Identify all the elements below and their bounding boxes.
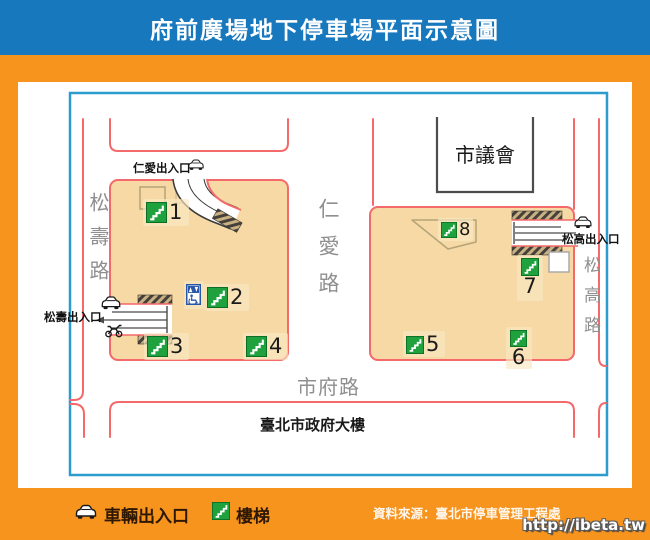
entrance-label-songgao: 松高出入口 <box>562 231 620 247</box>
stairs-icon <box>212 502 230 520</box>
page: 府前廣場地下停車場平面示意圖 <box>0 0 650 540</box>
stairs-icon <box>441 222 457 238</box>
stair-marker-5: 5 <box>406 334 439 355</box>
stairs-icon <box>406 336 424 354</box>
stair-number: 6 <box>512 347 525 368</box>
city-council-label: 市議會 <box>437 139 533 168</box>
stair-number: 2 <box>230 287 243 308</box>
road-label-songshou: 松壽路 <box>84 192 113 294</box>
ramp-grate <box>512 211 562 220</box>
legend-stairs-label: 樓梯 <box>236 502 270 527</box>
car-icon <box>187 158 205 171</box>
stair-marker-8: 8 <box>441 221 470 239</box>
stair-marker-3: 3 <box>147 336 183 357</box>
road-label-songgao: 松高路 <box>578 256 603 346</box>
stair-number: 4 <box>269 336 282 357</box>
stair-number: 8 <box>459 221 470 239</box>
stair-marker-7: 7 <box>521 258 539 297</box>
city-hall-label: 臺北市政府大樓 <box>240 414 385 435</box>
stairs-icon <box>146 202 167 223</box>
car-icon <box>573 215 593 229</box>
road-label-renai: 仁愛路 <box>313 198 343 309</box>
stair-number: 3 <box>170 336 183 357</box>
elevator-accessible-icon <box>186 284 201 305</box>
ramp-structure-outline <box>549 252 569 272</box>
car-icon <box>74 503 98 520</box>
stair-marker-1: 1 <box>146 202 182 223</box>
stair-marker-6: 6 <box>510 330 527 368</box>
stair-number: 1 <box>169 202 182 223</box>
car-icon <box>100 295 122 310</box>
entrance-label-songshou: 松壽出入口 <box>44 309 102 325</box>
stair-number: 5 <box>426 334 439 355</box>
entrance-label-renai: 仁愛出入口 <box>133 160 191 176</box>
ramp-grate <box>138 295 172 304</box>
road-label-shifu: 市府路 <box>297 371 360 400</box>
stairs-icon <box>147 336 168 357</box>
watermark: http://ibeta.tw <box>522 516 645 534</box>
stairs-icon <box>246 336 267 357</box>
motorcycle-icon <box>104 322 124 338</box>
stair-marker-2: 2 <box>207 287 243 308</box>
legend-vehicle-label: 車輛出入口 <box>104 502 189 527</box>
stair-number: 7 <box>523 276 536 297</box>
stair-marker-4: 4 <box>246 336 282 357</box>
stairs-icon <box>207 287 228 308</box>
